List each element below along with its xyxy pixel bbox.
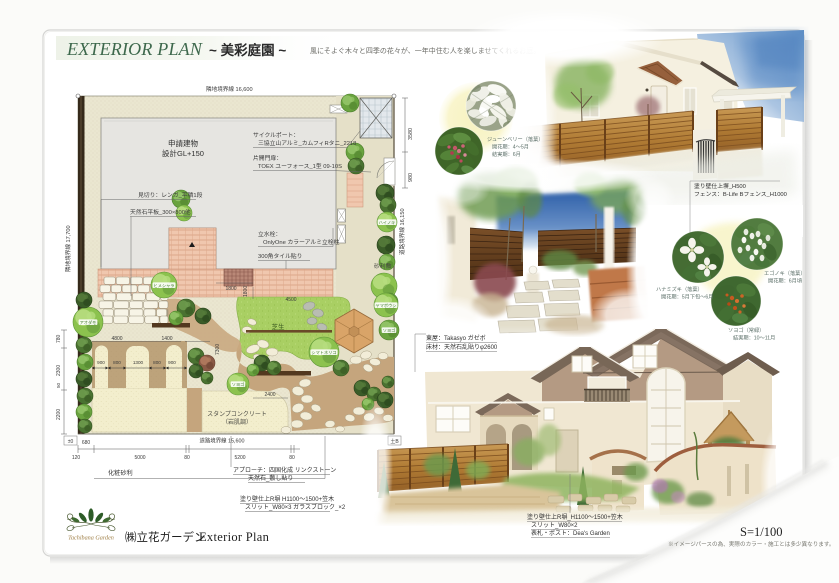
svg-text:見切り：レンガ_平積1段: 見切り：レンガ_平積1段	[138, 191, 203, 199]
svg-text:ハナミズキ（落葉）: ハナミズキ（落葉）	[656, 285, 703, 293]
svg-text:フェンス：B-Life Bフェンス_H1000: フェンス：B-Life Bフェンス_H1000	[694, 191, 787, 198]
svg-text:1800: 1800	[225, 286, 236, 292]
svg-text:隣地境界線 16,600: 隣地境界線 16,600	[206, 85, 253, 93]
svg-text:1800: 1800	[243, 286, 249, 297]
svg-text:開花期：6月頃: 開花期：6月頃	[768, 277, 803, 285]
svg-text:780: 780	[56, 334, 62, 343]
svg-text:ジューンベリー（落葉）: ジューンベリー（落葉）	[487, 135, 543, 143]
svg-text:S=1/100: S=1/100	[740, 525, 782, 539]
svg-text:2300: 2300	[56, 365, 62, 376]
svg-text:TOEX ユーフォース_1型 09-10S: TOEX ユーフォース_1型 09-10S	[258, 162, 342, 170]
svg-text:天然石平板_300×800他: 天然石平板_300×800他	[130, 208, 191, 216]
svg-text:塗り壁仕上R塀 H1100～1500+笠木: 塗り壁仕上R塀 H1100～1500+笠木	[240, 495, 334, 503]
svg-text:900: 900	[168, 360, 176, 365]
svg-text:4800: 4800	[111, 336, 122, 342]
svg-text:スリット_W80×2: スリット_W80×2	[531, 522, 578, 529]
svg-text:天然石_敷し貼り: 天然石_敷し貼り	[248, 474, 293, 482]
svg-text:片開門扉：: 片開門扉：	[253, 154, 282, 162]
svg-text:1300: 1300	[133, 360, 144, 365]
svg-text:800: 800	[113, 360, 121, 365]
svg-text:ソヨゴ（常緑）: ソヨゴ（常緑）	[728, 326, 764, 334]
svg-text:80: 80	[184, 455, 190, 461]
svg-text:Exterior Plan: Exterior Plan	[199, 530, 270, 544]
svg-text:※イメージパースの為、実際のカラー・施工とは多少異なります。: ※イメージパースの為、実際のカラー・施工とは多少異なります。	[668, 540, 835, 548]
svg-text:（岩肌調）: （岩肌調）	[222, 418, 252, 426]
svg-text:680: 680	[82, 440, 91, 446]
svg-text:化粧砂利: 化粧砂利	[108, 469, 133, 477]
svg-text:5000: 5000	[134, 455, 145, 461]
svg-text:OnlyOne カラーアルミ立栓柱: OnlyOne カラーアルミ立栓柱	[263, 238, 340, 246]
svg-text:砂利敷: 砂利敷	[374, 262, 392, 270]
svg-text:120: 120	[72, 455, 81, 461]
svg-text:スリット_W80×3 ガラスブロック_×2: スリット_W80×3 ガラスブロック_×2	[245, 503, 346, 511]
svg-text:隣地境界線 17,700: 隣地境界線 17,700	[64, 225, 72, 272]
svg-text:芝生: 芝生	[272, 322, 286, 331]
svg-text:結実期：10～11月: 結実期：10～11月	[733, 334, 775, 342]
svg-text:2200: 2200	[56, 409, 62, 420]
svg-text:アプローチ：四国化成 リンクストーン: アプローチ：四国化成 リンクストーン	[233, 466, 336, 474]
svg-text:表札・ポスト：Dea's Garden: 表札・ポスト：Dea's Garden	[531, 529, 610, 537]
svg-text:立水栓：: 立水栓：	[258, 230, 281, 238]
svg-text:三協立山アルミ_カムフィRタニ_2218: 三協立山アルミ_カムフィRタニ_2218	[258, 139, 356, 147]
svg-text:Tachibana Garden: Tachibana Garden	[68, 536, 114, 542]
svg-text:㈱立花ガーデン: ㈱立花ガーデン	[125, 530, 206, 544]
svg-text:ソヨゴ: ソヨゴ	[232, 381, 245, 387]
svg-text:4500: 4500	[285, 297, 296, 303]
svg-text:EXTERIOR PLAN: EXTERIOR PLAN	[66, 39, 203, 59]
svg-text:800: 800	[153, 360, 161, 365]
svg-text:300角タイル貼り: 300角タイル貼り	[258, 252, 302, 260]
svg-text:道路境界線 15,600: 道路境界線 15,600	[200, 437, 245, 445]
svg-text:ハイノキ: ハイノキ	[379, 220, 396, 225]
svg-text:980: 980	[408, 173, 414, 182]
svg-text:開花期：5月下旬～6月: 開花期：5月下旬～6月	[661, 293, 713, 301]
svg-text:東屋：Takasyo ガゼボ: 東屋：Takasyo ガゼボ	[426, 334, 486, 342]
svg-text:900: 900	[97, 360, 105, 365]
svg-text:~ 美彩庭園 ~: ~ 美彩庭園 ~	[209, 42, 286, 58]
svg-text:床材：天然石乱貼りφ2600: 床材：天然石乱貼りφ2600	[426, 343, 498, 351]
svg-text:±0: ±0	[68, 439, 74, 445]
svg-text:ソヨゴ: ソヨゴ	[383, 327, 396, 333]
svg-text:塗り壁仕上R塀_H1100～1500+笠木: 塗り壁仕上R塀_H1100～1500+笠木	[527, 513, 623, 521]
svg-text:サイクルポート：: サイクルポート：	[253, 131, 299, 139]
svg-text:アオダモ: アオダモ	[80, 319, 97, 326]
svg-text:50: 50	[56, 382, 61, 388]
svg-text:2400: 2400	[264, 392, 275, 398]
svg-text:申請建物: 申請建物	[168, 138, 198, 148]
svg-text:ヤマボウシ: ヤマボウシ	[376, 302, 397, 309]
svg-text:道路境界線 16,150: 道路境界線 16,150	[398, 208, 406, 255]
svg-text:結実期：6月: 結実期：6月	[492, 150, 521, 158]
svg-text:5200: 5200	[234, 455, 245, 461]
svg-text:3580: 3580	[408, 128, 414, 140]
svg-text:80: 80	[289, 455, 295, 461]
svg-text:開花期：4～5月: 開花期：4～5月	[492, 143, 529, 151]
svg-text:7300: 7300	[215, 344, 221, 355]
svg-text:エゴノキ（落葉）: エゴノキ（落葉）	[764, 269, 806, 277]
svg-text:スタンプコンクリート: スタンプコンクリート	[207, 410, 267, 418]
svg-text:塗り壁仕上塀_H500: 塗り壁仕上塀_H500	[694, 182, 746, 190]
svg-text:1400: 1400	[161, 336, 172, 342]
svg-text:設計GL+150: 設計GL+150	[162, 148, 204, 158]
